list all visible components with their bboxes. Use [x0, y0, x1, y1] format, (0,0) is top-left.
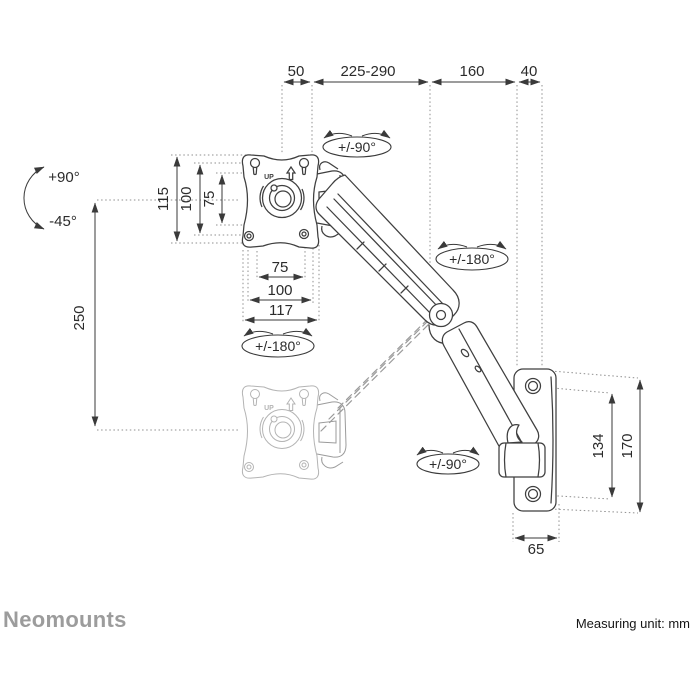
- technical-drawing-page: UP: [0, 0, 700, 700]
- dim-100-h: 100: [267, 282, 292, 299]
- rotation-elbow: +/-180°: [436, 244, 508, 270]
- rotation-label-elbow: +/-180°: [449, 251, 495, 267]
- top-dimension-chain: 50 225-290 160 40: [284, 63, 540, 82]
- tilt-down-label: -45°: [49, 213, 77, 230]
- measuring-unit-note: Measuring unit: mm: [576, 616, 690, 631]
- dim-117: 117: [269, 302, 293, 319]
- dim-134: 134: [590, 433, 607, 458]
- rotation-wall-swivel: +/-90°: [417, 450, 479, 474]
- dim-75-h: 75: [272, 259, 289, 276]
- vesa-plate-drawing: [242, 155, 318, 248]
- dim-100-v: 100: [178, 186, 195, 211]
- rotation-swivel-top: +/-90°: [323, 133, 391, 157]
- rotation-label-top: +/-90°: [338, 139, 376, 155]
- height-adjustment-dimension: 250: [71, 203, 95, 426]
- neomounts-logo: Neomounts: [3, 607, 127, 633]
- ghost-position-drawing: [242, 304, 443, 479]
- dim-40: 40: [521, 63, 538, 80]
- vesa-horizontal-dimensions: 75 100 117: [245, 259, 317, 320]
- dim-75-v: 75: [201, 191, 218, 208]
- dim-depth-50: 50: [288, 63, 305, 80]
- gas-spring-arm: [316, 175, 459, 325]
- dim-65: 65: [528, 541, 545, 558]
- tilt-up-label: +90°: [48, 169, 79, 186]
- tilt-range-indicator: +90° -45°: [24, 167, 80, 230]
- dim-115: 115: [155, 187, 172, 211]
- dim-reach-225-290: 225-290: [340, 63, 395, 80]
- rotation-label-wall: +/-90°: [429, 456, 467, 472]
- vesa-vertical-dimensions: 115 100 75: [155, 157, 222, 241]
- dim-250: 250: [71, 305, 88, 330]
- monitor-arm-dimension-diagram: UP: [0, 0, 700, 700]
- rotation-plate: +/-180°: [242, 331, 314, 357]
- dim-160: 160: [459, 63, 484, 80]
- dim-170: 170: [619, 433, 636, 458]
- rotation-label-plate: +/-180°: [255, 338, 301, 354]
